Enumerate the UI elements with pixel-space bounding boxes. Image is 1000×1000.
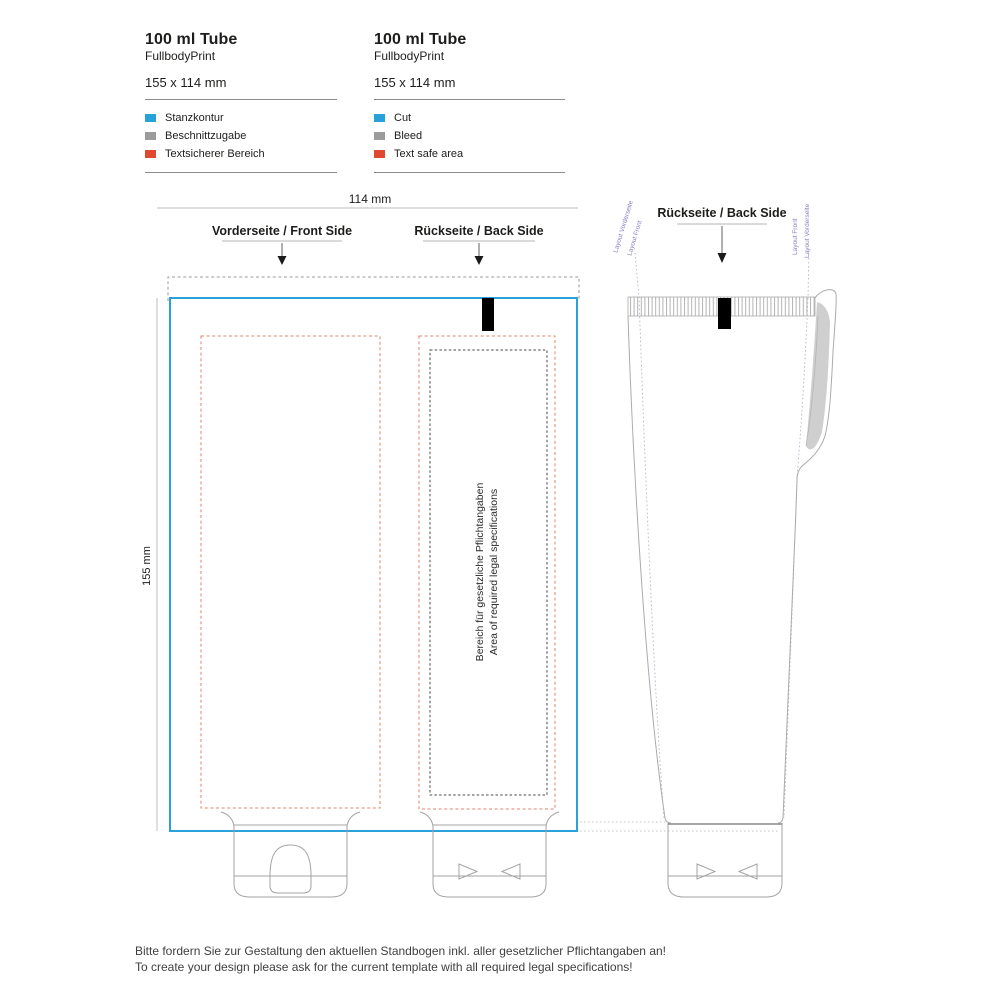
layout-label-right-inner: Layout Front: [792, 219, 800, 256]
seam-mark-flat: [482, 298, 494, 331]
back-side-title: Rückseite / Back Side: [397, 224, 561, 238]
back-cap-outline: [420, 812, 559, 897]
width-dimension-label: 114 mm: [330, 192, 410, 206]
layout-boundary-right: [784, 250, 809, 818]
tube-body-right-edge: [778, 480, 797, 823]
front-side-arrowhead: [278, 256, 287, 265]
front-text-safe-area: [201, 336, 380, 808]
legal-area-text-de: Bereich für gesetzliche Pflichtangaben: [474, 422, 488, 722]
footer-note-en: To create your design please ask for the…: [135, 960, 633, 975]
footer-note-de: Bitte fordern Sie zur Gestaltung den akt…: [135, 944, 666, 959]
tube-back-arrow: [677, 224, 767, 253]
layout-boundary-left: [635, 253, 664, 818]
tube-print-template-sheet: 100 ml Tube FullbodyPrint 155 x 114 mm S…: [0, 0, 1000, 1000]
seam-mark-tube: [718, 298, 731, 329]
layout-label-right-outer: Layout Vorderseite: [804, 204, 812, 258]
back-side-arrow: [423, 241, 535, 256]
front-cap-outline: [221, 812, 360, 897]
legal-area-text: Bereich für gesetzliche Pflichtangaben A…: [474, 422, 502, 722]
front-side-arrow: [222, 241, 342, 256]
tube-cap-outline: [668, 823, 782, 897]
legal-area-text-en: Area of required legal specifications: [488, 422, 502, 722]
front-side-title: Vorderseite / Front Side: [200, 224, 364, 238]
cut-line: [170, 298, 577, 831]
back-side-arrowhead: [475, 256, 484, 265]
height-dimension-label: 155 mm: [141, 531, 153, 601]
tube-back-arrowhead: [718, 253, 727, 263]
tube-back-side-title: Rückseite / Back Side: [640, 206, 804, 220]
